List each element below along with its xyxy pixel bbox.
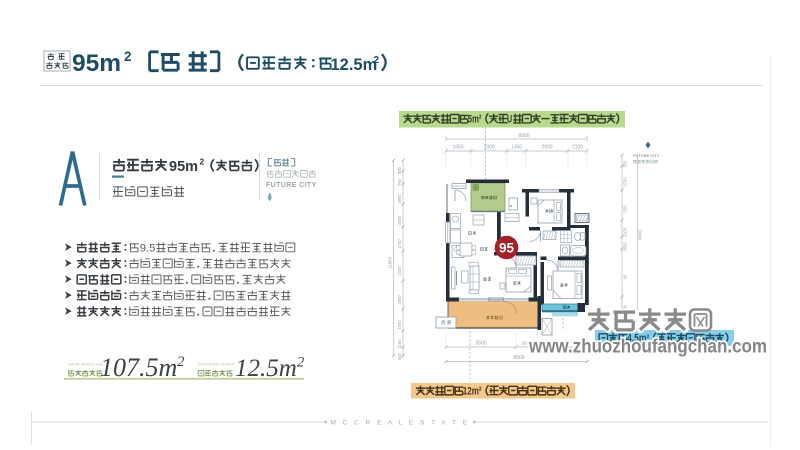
svg-text:9000: 9000: [638, 229, 643, 240]
svg-text:60: 60: [623, 274, 628, 279]
svg-text:2900: 2900: [483, 145, 494, 151]
svg-text:107.5m: 107.5m: [100, 353, 177, 382]
svg-text:980: 980: [397, 166, 402, 174]
svg-text:9.5: 9.5: [140, 242, 156, 254]
svg-text:2: 2: [200, 157, 205, 167]
svg-text:8500: 8500: [513, 355, 524, 361]
svg-text:750: 750: [623, 160, 628, 168]
svg-text:12.5m: 12.5m: [331, 56, 378, 74]
svg-text:2450: 2450: [397, 266, 402, 276]
svg-text:FUTURE CITY: FUTURE CITY: [266, 182, 317, 189]
svg-text:750: 750: [397, 178, 402, 186]
svg-text:2: 2: [297, 355, 304, 371]
svg-text:SHIDE MIANJI YUE: SHIDE MIANJI YUE: [68, 363, 104, 367]
svg-text:1950: 1950: [397, 295, 402, 305]
svg-text:1750: 1750: [397, 239, 402, 249]
svg-text:2100: 2100: [572, 145, 583, 151]
svg-text:2700: 2700: [623, 177, 628, 187]
svg-text:500: 500: [623, 205, 628, 213]
svg-text:www.zhuozhoufangchan.com: www.zhuozhoufangchan.com: [528, 336, 767, 358]
svg-text:600: 600: [397, 352, 402, 360]
svg-text:1650: 1650: [452, 145, 463, 151]
svg-text:2: 2: [177, 354, 185, 370]
svg-text:12m²: 12m²: [463, 386, 482, 398]
svg-text:95m: 95m: [72, 50, 121, 77]
svg-text:95m: 95m: [169, 159, 198, 175]
svg-text:1350: 1350: [511, 145, 522, 151]
svg-text:1650: 1650: [397, 215, 402, 225]
svg-text:11850: 11850: [388, 256, 393, 269]
svg-text:3400: 3400: [623, 242, 628, 252]
svg-text:1150: 1150: [397, 339, 402, 349]
svg-text:U: U: [507, 114, 512, 126]
svg-text:ZENGSONG MIANJI: ZENGSONG MIANJI: [198, 363, 234, 367]
svg-text:1900: 1900: [397, 194, 402, 204]
svg-text:5m²: 5m²: [468, 114, 482, 126]
svg-text:2: 2: [124, 49, 132, 64]
svg-text:95: 95: [499, 240, 515, 255]
svg-text:2: 2: [374, 55, 380, 66]
svg-text:8900: 8900: [518, 133, 529, 139]
svg-text:1500: 1500: [397, 320, 402, 330]
svg-text:FUTURE CITY: FUTURE CITY: [633, 153, 660, 158]
svg-text:2900: 2900: [541, 145, 552, 151]
svg-text:3500: 3500: [475, 341, 486, 347]
svg-text:M C C R E A L E S T A T: M C C R E A L E S T A T E: [330, 420, 469, 427]
